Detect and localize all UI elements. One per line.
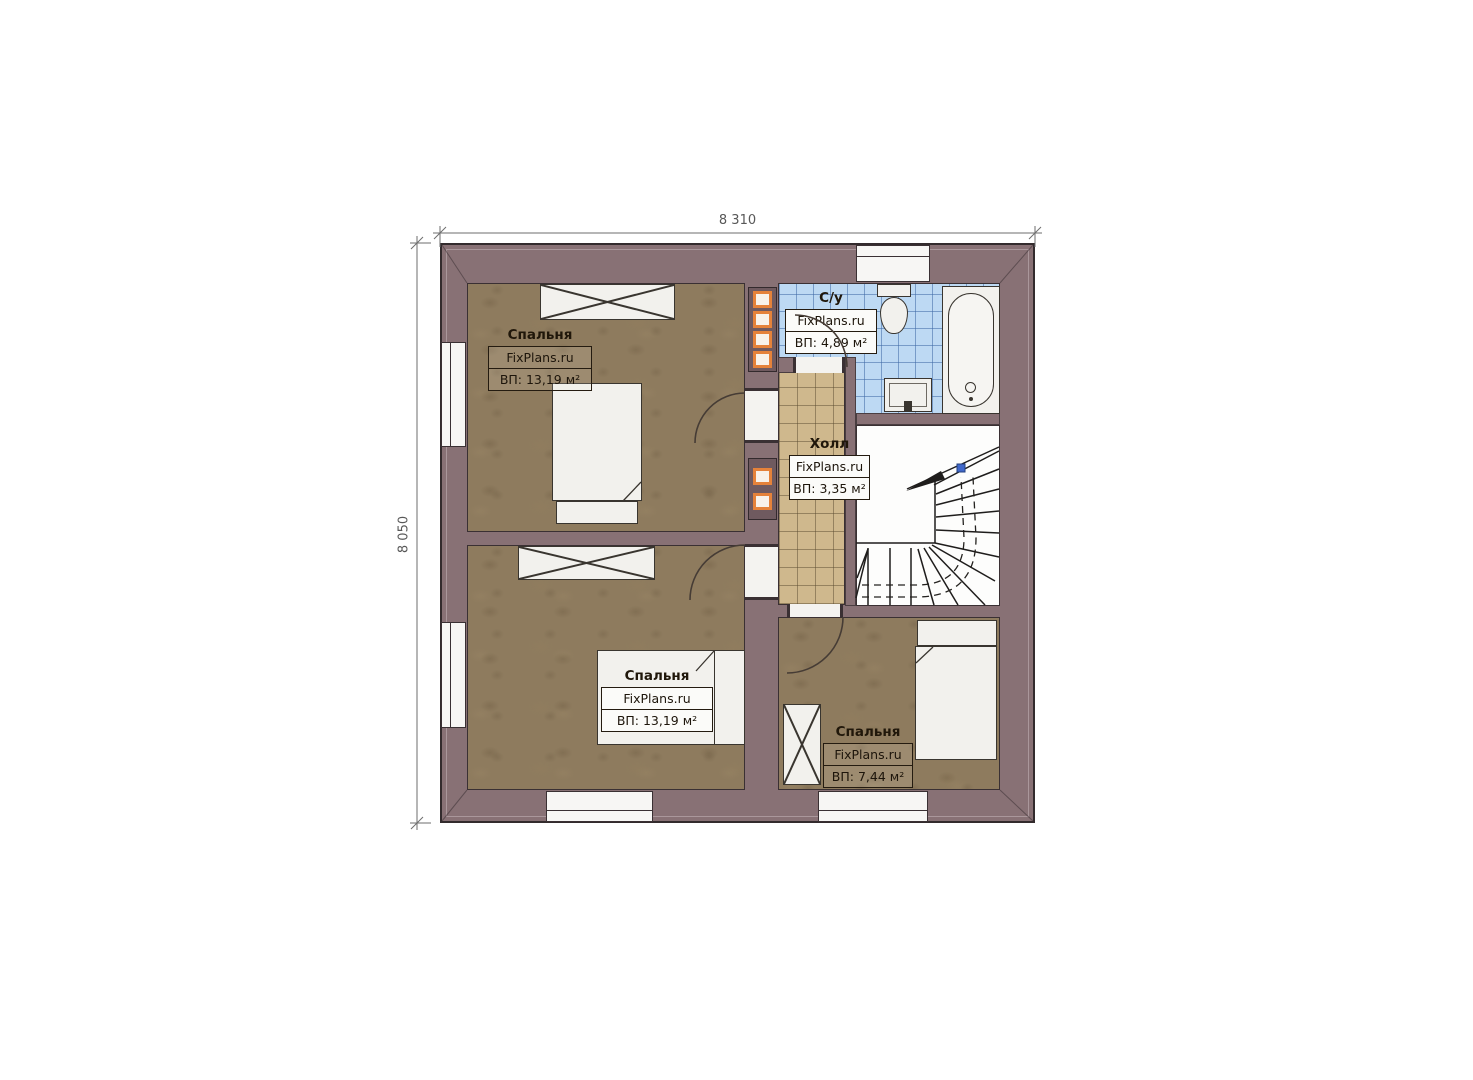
room-name: С/у	[785, 290, 877, 306]
room-label-hall: Холл FixPlans.ru ВП: 3,35 м²	[789, 436, 870, 500]
wardrobe	[783, 704, 821, 785]
room-area: ВП: 7,44 м²	[824, 765, 912, 787]
watermark: FixPlans.ru	[786, 310, 876, 331]
watermark: FixPlans.ru	[790, 456, 869, 477]
dimension-width-label: 8 310	[690, 213, 785, 228]
bed-footboard	[556, 501, 638, 524]
door-opening-bedroom-bottom-right	[787, 604, 843, 617]
dimension-height-label: 8 050	[397, 495, 412, 575]
door-opening-bathroom	[793, 357, 845, 373]
wall-bathroom-stairs	[856, 413, 1000, 425]
room-label-bedroom-bottom-left: Спальня FixPlans.ru ВП: 13,19 м²	[601, 668, 713, 732]
wardrobe	[540, 284, 675, 320]
staircase-area	[856, 425, 1000, 606]
room-name: Спальня	[488, 327, 592, 343]
flue-icon	[753, 468, 772, 485]
room-name: Спальня	[823, 724, 913, 740]
watermark: FixPlans.ru	[489, 347, 591, 368]
bed	[552, 383, 642, 501]
toilet-tank	[877, 284, 911, 297]
bed-headboard	[917, 620, 997, 646]
room-label-bathroom: С/у FixPlans.ru ВП: 4,89 м²	[785, 290, 877, 354]
room-name: Спальня	[601, 668, 713, 684]
room-area: ВП: 4,89 м²	[786, 331, 876, 353]
window-top	[856, 245, 930, 282]
vent-block-middle	[748, 458, 777, 520]
wardrobe	[518, 546, 655, 580]
watermark: FixPlans.ru	[824, 744, 912, 765]
window-bottom-left	[546, 791, 653, 822]
room-area: ВП: 3,35 м²	[790, 477, 869, 499]
flue-icon	[753, 351, 772, 368]
flue-icon	[753, 493, 772, 510]
room-label-bedroom-bottom-right: Спальня FixPlans.ru ВП: 7,44 м²	[823, 724, 913, 788]
room-name: Холл	[789, 436, 870, 452]
door-opening-bedroom-bottom-left	[745, 544, 778, 600]
window-left-bottom	[441, 622, 466, 728]
window-left-top	[441, 342, 466, 447]
window-bottom-right	[818, 791, 928, 822]
room-label-bedroom-top-left: Спальня FixPlans.ru ВП: 13,19 м²	[488, 327, 592, 391]
flue-icon	[753, 331, 772, 348]
room-area: ВП: 13,19 м²	[489, 368, 591, 390]
door-opening-bedroom-top-left	[745, 388, 778, 443]
bathtub	[942, 286, 1000, 414]
bed	[915, 646, 997, 760]
vent-block-top	[748, 287, 777, 372]
room-area: ВП: 13,19 м²	[602, 709, 712, 731]
watermark: FixPlans.ru	[602, 688, 712, 709]
floor-plan-canvas: 8 310 8 050	[0, 0, 1473, 1080]
flue-icon	[753, 291, 772, 308]
flue-icon	[753, 311, 772, 328]
sink	[884, 378, 932, 412]
